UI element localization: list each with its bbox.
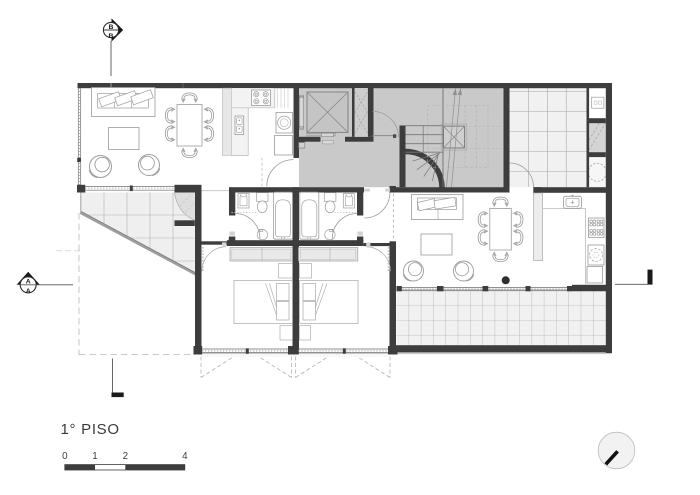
svg-text:B: B: [109, 24, 114, 31]
svg-text:1: 1: [92, 451, 97, 462]
svg-text:B: B: [109, 33, 114, 40]
svg-text:2: 2: [123, 451, 128, 462]
svg-text:A: A: [26, 279, 31, 286]
svg-text:4: 4: [182, 451, 188, 462]
svg-text:1° PISO: 1° PISO: [61, 421, 120, 438]
svg-text:0: 0: [62, 451, 68, 462]
svg-text:A: A: [26, 288, 31, 295]
